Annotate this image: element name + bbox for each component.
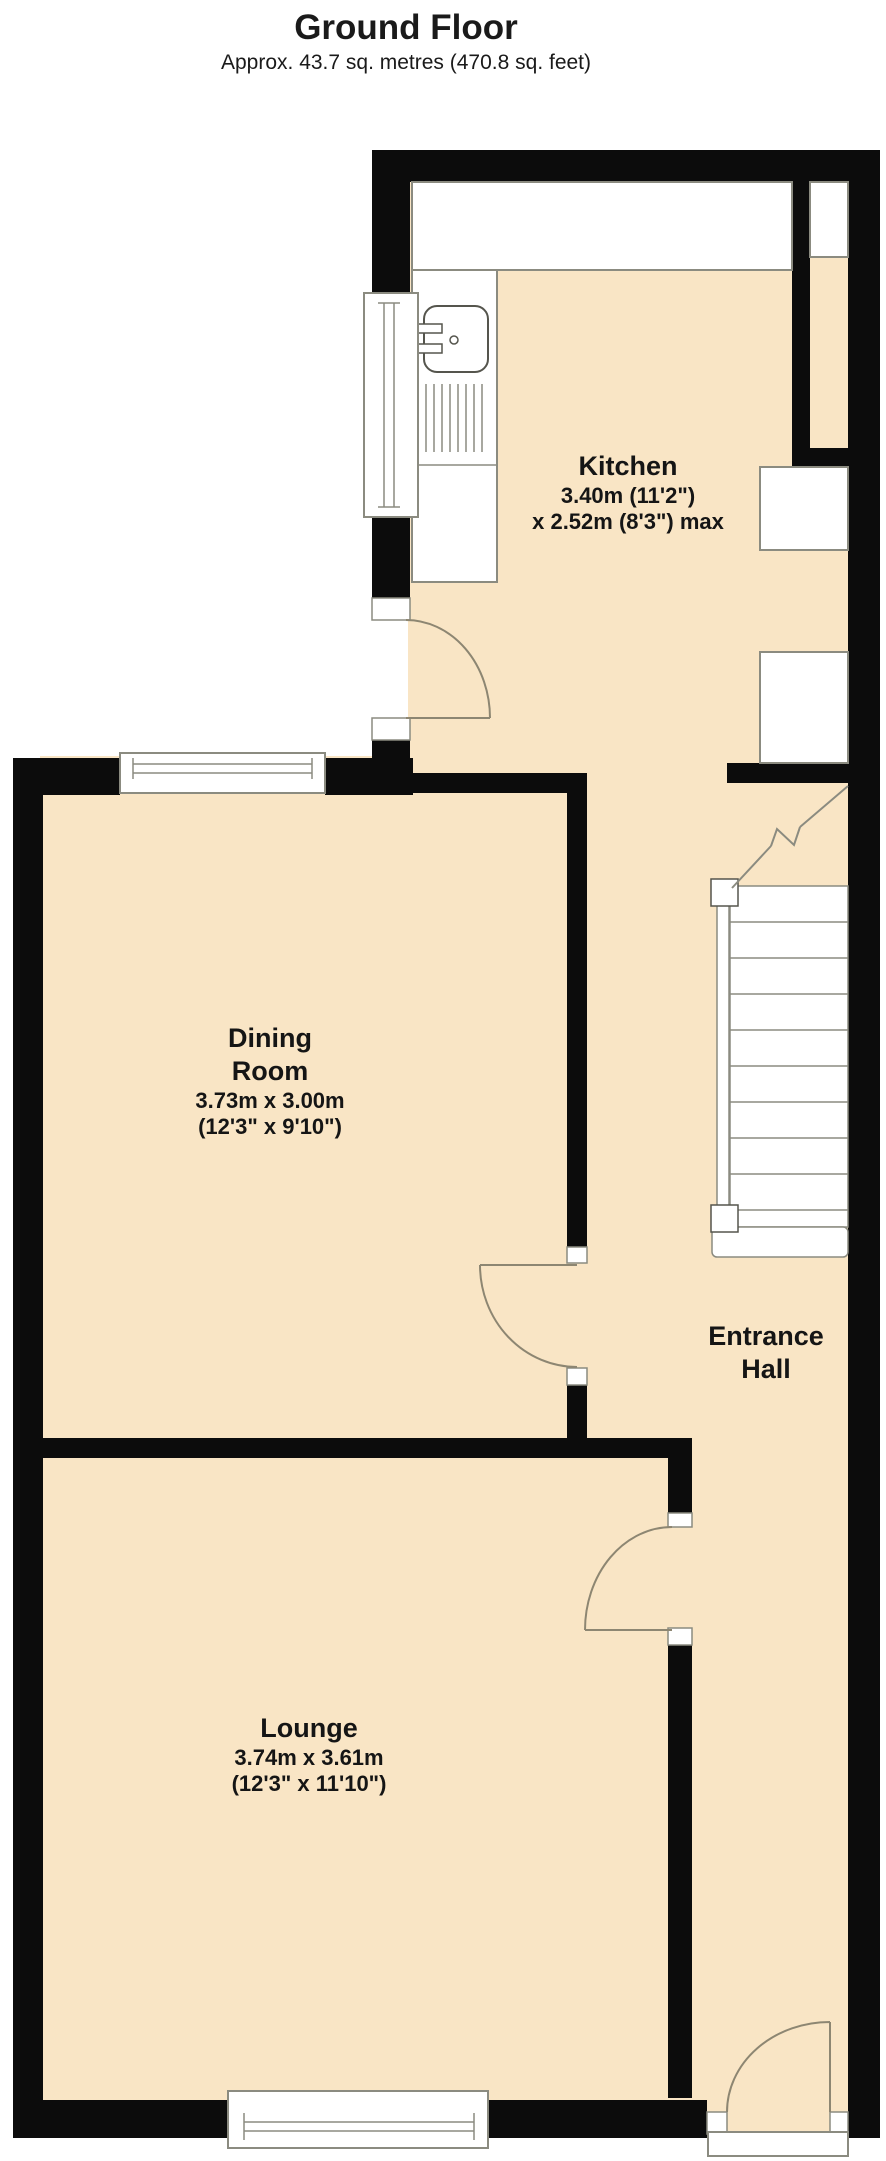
- wall-stairs-stub: [727, 763, 848, 783]
- dining-name-line1: Dining: [195, 1022, 344, 1055]
- floor-plan-page: Ground Floor Approx. 43.7 sq. metres (47…: [0, 0, 886, 2161]
- lounge-dim2: (12'3" x 11'10"): [232, 1771, 387, 1797]
- newel-post-bottom: [711, 1205, 738, 1232]
- kitchen-dim1: 3.40m (11'2"): [532, 483, 724, 509]
- wall-kitchen-left-mid: [372, 517, 410, 598]
- dining-name-line2: Room: [195, 1055, 344, 1088]
- entrance-hall-label: Entrance Hall: [708, 1320, 824, 1386]
- dining-bay-window: [120, 753, 325, 793]
- page-subtitle: Approx. 43.7 sq. metres (470.8 sq. feet): [221, 50, 591, 76]
- lounge-label: Lounge 3.74m x 3.61m (12'3" x 11'10"): [232, 1712, 387, 1797]
- lounge-dim1: 3.74m x 3.61m: [232, 1745, 387, 1771]
- wall-bottom-mid: [488, 2100, 707, 2138]
- page-title: Ground Floor: [221, 6, 591, 50]
- dining-door-jamb-bottom: [567, 1368, 587, 1385]
- lounge-name: Lounge: [232, 1712, 387, 1745]
- dining-dim1: 3.73m x 3.00m: [195, 1088, 344, 1114]
- kitchen-window: [364, 293, 418, 517]
- wall-lounge-hall-lower: [668, 1645, 692, 2098]
- kitchen-name: Kitchen: [532, 450, 724, 483]
- wall-lounge-hall-branch: [668, 1458, 692, 1513]
- front-door-threshold: [708, 2132, 848, 2156]
- stair-handrail: [717, 892, 729, 1216]
- wall-dining-top-right: [325, 758, 413, 795]
- kitchen-recess: [760, 467, 848, 550]
- front-door-jamb-right: [830, 2112, 848, 2134]
- lounge-window: [228, 2091, 488, 2148]
- dining-room-label: Dining Room 3.73m x 3.00m (12'3" x 9'10"…: [195, 1022, 344, 1140]
- wall-bottom-left: [13, 2100, 228, 2138]
- lounge-door-jamb-top: [668, 1513, 692, 1527]
- front-door-jamb-left: [707, 2112, 727, 2134]
- wall-dining-lounge-divider: [13, 1438, 692, 1458]
- wall-dining-top-ext: [413, 773, 587, 793]
- kitchen-dim2: x 2.52m (8'3") max: [532, 509, 724, 535]
- entrance-name-line2: Hall: [708, 1353, 824, 1386]
- under-stairs-cupboard: [760, 652, 848, 763]
- kitchen-door-jamb-top: [372, 598, 410, 620]
- stair-treads-area: [730, 886, 848, 1227]
- counter-right-strip: [810, 182, 848, 257]
- counter-top-run: [412, 182, 792, 270]
- entrance-name-line1: Entrance: [708, 1320, 824, 1353]
- kitchen-label: Kitchen 3.40m (11'2") x 2.52m (8'3") max: [532, 450, 724, 535]
- wall-dining-hall-upper: [567, 793, 587, 1247]
- wall-stub-right: [792, 448, 848, 467]
- dining-dim2: (12'3" x 9'10"): [195, 1114, 344, 1140]
- wall-kitchen-left-upper: [372, 150, 410, 293]
- kitchen-door-jamb-bottom: [372, 718, 410, 740]
- wall-kitchen-inner-right: [792, 150, 810, 448]
- wall-right-outer: [848, 150, 880, 2138]
- floor-plan-drawing: [0, 0, 886, 2161]
- dining-door-jamb-top: [567, 1247, 587, 1263]
- newel-post-top: [711, 879, 738, 906]
- plan-header: Ground Floor Approx. 43.7 sq. metres (47…: [221, 6, 591, 76]
